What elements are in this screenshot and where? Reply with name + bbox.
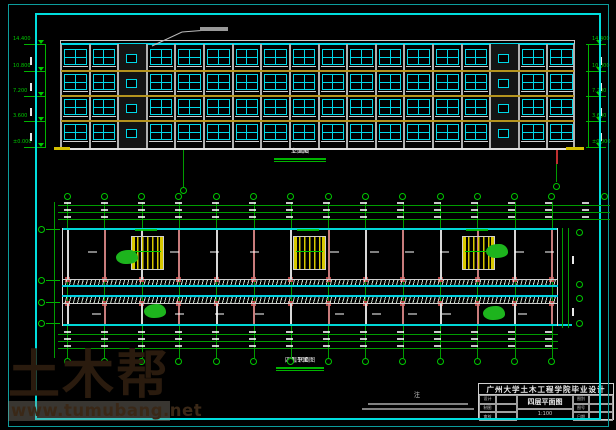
title-block-field-label: 审核 xyxy=(479,412,496,420)
plan-dim-line xyxy=(58,334,558,335)
title-block-field-label: 制图 xyxy=(479,404,496,413)
elevation-window-sill xyxy=(321,91,346,92)
elevation-window-sill xyxy=(521,141,546,142)
elevation-window xyxy=(293,74,316,90)
plan-partition-upper xyxy=(290,230,292,279)
elevation-window xyxy=(350,99,373,115)
elevation-window-sill xyxy=(263,66,288,67)
plan-room-label xyxy=(408,313,417,315)
plan-grid-bubble-bottom xyxy=(548,358,555,365)
plan-dim-numbers xyxy=(64,338,556,340)
plan-room-label xyxy=(210,251,219,253)
plan-partition-lower xyxy=(402,304,404,324)
elevation-window-sill xyxy=(435,116,460,117)
elevation-window-sill xyxy=(435,141,460,142)
elevation-window-sill xyxy=(177,116,202,117)
plan-partition-upper xyxy=(178,230,180,279)
elevation-dim-text-dash xyxy=(30,57,32,65)
plan-row-bubble-right xyxy=(576,281,583,288)
elevation-window-sill xyxy=(464,66,489,67)
plan-stair-rail xyxy=(463,237,466,269)
elevation-stair-window xyxy=(126,79,137,88)
elevation-window xyxy=(207,74,230,90)
plan-grid-bubble-top xyxy=(138,193,145,200)
plan-wall-left xyxy=(62,228,63,326)
elevation-level-mark xyxy=(596,143,602,147)
elevation-window xyxy=(350,74,373,90)
plan-dim-numbers xyxy=(64,202,609,204)
elevation-stair-window xyxy=(126,129,137,138)
elevation-window xyxy=(550,124,573,140)
elevation-window xyxy=(379,74,402,90)
elevation-window xyxy=(150,74,173,90)
elevation-window-sill xyxy=(321,66,346,67)
elevation-level-tick xyxy=(24,71,46,72)
plan-caption-underline-thin xyxy=(276,370,324,371)
elevation-window-sill xyxy=(378,116,403,117)
elevation-stair-window xyxy=(126,54,137,63)
notes-marker: 注 xyxy=(414,393,424,400)
elevation-window-sill xyxy=(349,91,374,92)
title-block-field-value xyxy=(496,395,517,404)
title-block-field-value xyxy=(589,395,613,404)
elevation-window xyxy=(93,49,116,65)
elevation-dim-text-dash xyxy=(600,57,602,65)
plan-grid-bubble-bottom xyxy=(362,358,369,365)
elevation-floor-band xyxy=(61,95,574,97)
elevation-window-sill xyxy=(435,91,460,92)
elevation-level-mark xyxy=(38,143,44,147)
plan-partition-lower xyxy=(514,304,516,324)
elevation-level-tick xyxy=(24,96,46,97)
plan-dim-line xyxy=(58,212,610,213)
elevation-window-sill xyxy=(149,91,174,92)
elevation-window xyxy=(150,99,173,115)
plan-partition-lower xyxy=(290,304,292,324)
plan-grid-bubble-top xyxy=(511,193,518,200)
elevation-grid-marker-red xyxy=(556,150,558,164)
plan-room-label xyxy=(215,313,224,315)
plan-row-bubble-right xyxy=(576,295,583,302)
plan-grid-bubble-bottom xyxy=(437,358,444,365)
plan-partition-upper xyxy=(104,230,106,279)
title-block-field-label: 日期 xyxy=(573,412,589,420)
notes-text-line xyxy=(368,403,468,405)
elevation-window xyxy=(407,49,430,65)
plan-partition-upper xyxy=(253,230,255,279)
plan-stair-label xyxy=(297,229,319,231)
plan-plant xyxy=(486,244,508,258)
plan-room-label xyxy=(442,313,451,315)
elevation-window xyxy=(465,99,488,115)
plan-dim-line-right xyxy=(562,228,563,328)
elevation-window-sill xyxy=(549,66,574,67)
plan-partition-lower xyxy=(104,304,106,324)
plan-dim-line xyxy=(58,219,610,220)
plan-grid-bubble-bottom xyxy=(325,358,332,365)
elevation-window-sill xyxy=(349,141,374,142)
elevation-window xyxy=(465,49,488,65)
plan-grid-bubble-top xyxy=(601,193,608,200)
elevation-window-sill xyxy=(177,66,202,67)
plan-partition-upper xyxy=(551,230,553,279)
title-block-field-label: 图号 xyxy=(573,404,589,413)
elevation-window-sill xyxy=(464,141,489,142)
plan-room-label xyxy=(372,313,381,315)
elevation-window-sill xyxy=(406,116,431,117)
elevation-grid-marker-line xyxy=(183,150,184,187)
elevation-window-sill xyxy=(92,91,117,92)
plan-caption-underline xyxy=(276,367,324,369)
elevation-window xyxy=(236,124,259,140)
elevation-grid-marker-line xyxy=(556,164,557,182)
elevation-window-sill xyxy=(349,66,374,67)
elevation-stair-window xyxy=(498,104,509,113)
elevation-window-sill xyxy=(92,116,117,117)
elevation-stair-window xyxy=(498,129,509,138)
plan-door-arcs xyxy=(62,280,558,285)
elevation-window xyxy=(207,99,230,115)
plan-wall-bottom xyxy=(62,324,572,326)
elevation-level-mark xyxy=(38,92,44,96)
plan-room-label xyxy=(330,251,339,253)
plan-grid-bubble-bottom xyxy=(399,358,406,365)
elevation-window-sill xyxy=(206,91,231,92)
elevation-level-mark xyxy=(596,67,602,71)
watermark-url: www.tumubang.net xyxy=(8,401,170,421)
plan-dim-numbers xyxy=(64,331,556,333)
title-block-scale: 1:100 xyxy=(517,409,573,419)
elevation-window xyxy=(236,74,259,90)
elevation-window xyxy=(522,124,545,140)
elevation-window xyxy=(64,99,87,115)
plan-grid-bubble-bottom xyxy=(474,358,481,365)
elevation-window-sill xyxy=(149,116,174,117)
plan-plant xyxy=(483,306,505,320)
elevation-window-sill xyxy=(263,116,288,117)
elevation-window-sill xyxy=(521,66,546,67)
elevation-stair-window xyxy=(126,104,137,113)
elevation-ground-yellow-left xyxy=(54,147,70,150)
elevation-window-sill xyxy=(378,66,403,67)
elevation-window-sill xyxy=(406,141,431,142)
plan-stair-rail xyxy=(160,237,163,269)
elevation-window-sill xyxy=(235,116,260,117)
elevation-level-mark xyxy=(38,117,44,121)
elevation-window-sill xyxy=(92,141,117,142)
plan-dim-numbers xyxy=(64,209,609,211)
plan-door-arcs xyxy=(62,297,558,303)
elevation-window xyxy=(350,49,373,65)
elevation-window xyxy=(93,74,116,90)
plan-room-label xyxy=(88,251,97,253)
elevation-window-sill xyxy=(464,91,489,92)
elevation-level-mark xyxy=(596,40,602,44)
elevation-window xyxy=(522,49,545,65)
plan-dim-text-dash xyxy=(572,308,574,316)
elevation-window-sill xyxy=(549,141,574,142)
elevation-caption-underline-thin xyxy=(274,161,326,162)
elevation-window-sill xyxy=(177,141,202,142)
elevation-window xyxy=(293,99,316,115)
elevation-floor-band xyxy=(61,70,574,72)
elevation-window xyxy=(465,124,488,140)
plan-partition-upper xyxy=(440,230,442,279)
plan-stair-rail xyxy=(294,237,297,269)
elevation-window-sill xyxy=(263,91,288,92)
elevation-level-mark xyxy=(596,117,602,121)
elevation-window-sill xyxy=(63,116,88,117)
elevation-window xyxy=(550,99,573,115)
elevation-window-sill xyxy=(435,66,460,67)
title-block-field-value xyxy=(496,404,517,413)
plan-plant xyxy=(144,304,166,318)
plan-partition-lower xyxy=(141,304,143,324)
elevation-window xyxy=(322,99,345,115)
plan-grid-bubble-top xyxy=(175,193,182,200)
plan-dim-numbers xyxy=(64,216,609,218)
elevation-window xyxy=(207,124,230,140)
plan-grid-bubble-bottom xyxy=(213,358,220,365)
elevation-window-sill xyxy=(521,91,546,92)
elevation-window-sill xyxy=(63,66,88,67)
elevation-window xyxy=(264,124,287,140)
elevation-dim-text-dash xyxy=(600,133,602,141)
elevation-window-sill xyxy=(321,141,346,142)
plan-grid-bubble-top xyxy=(437,193,444,200)
elevation-level-mark xyxy=(596,92,602,96)
title-block-field-value xyxy=(589,412,613,420)
elevation-window-sill xyxy=(235,141,260,142)
elevation-window xyxy=(93,124,116,140)
title-block: 广州大学土木工程学院毕业设计 设计 制图 审核 四层平面图 1:100 图别 图… xyxy=(478,383,614,420)
elevation-window xyxy=(178,74,201,90)
plan-room-label xyxy=(175,313,184,315)
elevation-window xyxy=(293,124,316,140)
elevation-level-mark xyxy=(38,40,44,44)
plan-partition-lower xyxy=(328,304,330,324)
elevation-window xyxy=(465,74,488,90)
plan-dim-line-left xyxy=(54,202,55,358)
elevation-window-sill xyxy=(521,116,546,117)
plan-partition-upper xyxy=(67,230,69,279)
elevation-window xyxy=(93,99,116,115)
elevation-window-sill xyxy=(349,116,374,117)
plan-grid-bubble-top xyxy=(325,193,332,200)
elevation-level-mark xyxy=(38,67,44,71)
elevation-window-sill xyxy=(292,91,317,92)
plan-room-label xyxy=(440,251,449,253)
plan-grid-bubble-top xyxy=(548,193,555,200)
elevation-window xyxy=(522,74,545,90)
plan-partition-upper xyxy=(216,230,218,279)
elevation-window-sill xyxy=(378,141,403,142)
plan-corridor-band xyxy=(62,285,558,287)
elevation-window-sill xyxy=(206,141,231,142)
plan-grid-bubble-top xyxy=(64,193,71,200)
elevation-dim-text-dash xyxy=(600,83,602,91)
plan-grid-bubble-top xyxy=(399,193,406,200)
plan-stair-label xyxy=(135,229,157,231)
plan-room-label xyxy=(545,251,554,253)
elevation-caption-underline xyxy=(274,158,326,160)
plan-row-bubble-right xyxy=(576,229,583,236)
elevation-window-sill xyxy=(263,141,288,142)
elevation-window-sill xyxy=(177,91,202,92)
elevation-ground-line xyxy=(54,148,584,150)
elevation-level-tick xyxy=(24,44,46,45)
plan-grid-bubble-top xyxy=(362,193,369,200)
plan-room-label xyxy=(335,313,344,315)
plan-grid-bubble-top xyxy=(287,193,294,200)
elevation-window xyxy=(379,124,402,140)
plan-plant xyxy=(116,250,138,264)
elevation-window-sill xyxy=(149,141,174,142)
plan-wall-right xyxy=(557,228,558,326)
notes-text-line xyxy=(362,408,474,410)
elevation-window xyxy=(550,49,573,65)
elevation-dim-text-dash xyxy=(30,83,32,91)
plan-row-tick-left xyxy=(46,280,60,281)
elevation-window xyxy=(322,74,345,90)
plan-row-tick-left xyxy=(46,229,60,230)
elevation-window xyxy=(64,74,87,90)
elevation-window-sill xyxy=(63,91,88,92)
plan-row-bubble-right xyxy=(576,320,583,327)
elevation-window-sill xyxy=(63,141,88,142)
elevation-window-sill xyxy=(406,91,431,92)
elevation-window xyxy=(264,74,287,90)
elevation-window-sill xyxy=(92,66,117,67)
plan-room-label xyxy=(405,251,414,253)
plan-partition-upper xyxy=(402,230,404,279)
elevation-window xyxy=(350,124,373,140)
plan-room-label xyxy=(518,313,527,315)
plan-row-tick-left xyxy=(46,302,60,303)
plan-row-bubble-left xyxy=(38,277,45,284)
elevation-window-sill xyxy=(235,91,260,92)
elevation-window-sill xyxy=(206,116,231,117)
title-block-school: 广州大学土木工程学院毕业设计 xyxy=(479,384,613,395)
elevation-window xyxy=(322,49,345,65)
plan-grid-bubble-top xyxy=(101,193,108,200)
plan-room-label xyxy=(92,313,101,315)
elevation-level-tick xyxy=(586,44,606,45)
plan-stair-arrow xyxy=(296,251,323,252)
elevation-grid-marker-bubble xyxy=(553,183,560,190)
plan-room-label xyxy=(255,313,264,315)
elevation-window-sill xyxy=(292,141,317,142)
elevation-window-sill xyxy=(378,91,403,92)
plan-grid-bubble-top xyxy=(474,193,481,200)
elevation-window xyxy=(436,99,459,115)
title-block-field-value xyxy=(496,412,517,420)
plan-row-tick-left xyxy=(46,323,60,324)
plan-caption: 四层平面图 1:100 xyxy=(240,357,360,366)
cad-drawing-sheet: 立面图 1:100 四层平面图 1:100 注 广州大学土木工程学院毕业设计 设… xyxy=(0,0,616,430)
plan-row-bubble-left xyxy=(38,299,45,306)
elevation-level-tick xyxy=(586,71,606,72)
elevation-window-sill xyxy=(549,91,574,92)
elevation-stair-window xyxy=(498,79,509,88)
elevation-window xyxy=(436,74,459,90)
plan-grid-bubble-bottom xyxy=(250,358,257,365)
plan-dim-line-right xyxy=(568,228,569,328)
plan-room-label xyxy=(370,251,379,253)
plan-partition-upper xyxy=(514,230,516,279)
plan-partition-upper xyxy=(328,230,330,279)
elevation-dim-text-dash xyxy=(600,108,602,116)
plan-grid-bubble-top xyxy=(213,193,220,200)
elevation-window-sill xyxy=(206,66,231,67)
elevation-window xyxy=(236,49,259,65)
elevation-window xyxy=(264,99,287,115)
elevation-window-sill xyxy=(235,66,260,67)
elevation-window xyxy=(178,99,201,115)
elevation-window xyxy=(522,99,545,115)
plan-room-label xyxy=(250,251,259,253)
elevation-level-tick xyxy=(586,96,606,97)
plan-room-label xyxy=(515,251,524,253)
elevation-level-tick xyxy=(586,121,606,122)
title-block-drawing-name: 四层平面图 xyxy=(517,395,573,409)
elevation-dim-text-dash xyxy=(30,133,32,141)
elevation-window xyxy=(236,99,259,115)
elevation-window xyxy=(264,49,287,65)
elevation-window-sill xyxy=(464,116,489,117)
elevation-window-sill xyxy=(292,116,317,117)
elevation-window xyxy=(178,124,201,140)
elevation-window xyxy=(436,49,459,65)
elevation-window-sill xyxy=(549,116,574,117)
elevation-window xyxy=(150,124,173,140)
plan-grid-bubble-top xyxy=(250,193,257,200)
roof-callout-leader xyxy=(150,24,240,48)
plan-dim-line xyxy=(58,205,610,206)
elevation-window-sill xyxy=(406,66,431,67)
plan-row-bubble-left xyxy=(38,320,45,327)
elevation-level-tick xyxy=(586,147,606,148)
watermark-brand: 土木帮 xyxy=(8,348,188,404)
elevation-dim-text-dash xyxy=(30,108,32,116)
plan-room-label xyxy=(170,251,179,253)
plan-stair-rail xyxy=(322,237,325,269)
elevation-window-sill xyxy=(321,116,346,117)
plan-partition-lower xyxy=(67,304,69,324)
plan-stair-label xyxy=(466,229,488,231)
elevation-window xyxy=(379,99,402,115)
plan-grid-bubble-bottom xyxy=(511,358,518,365)
elevation-window xyxy=(64,124,87,140)
elevation-window-sill xyxy=(149,66,174,67)
title-block-field-label: 图别 xyxy=(573,395,589,404)
elevation-window xyxy=(207,49,230,65)
elevation-window xyxy=(293,49,316,65)
elevation-window xyxy=(322,124,345,140)
plan-stair-arrow xyxy=(134,251,161,252)
elevation-floor-band xyxy=(61,120,574,122)
plan-dim-text-dash xyxy=(572,256,574,264)
elevation-window xyxy=(150,49,173,65)
plan-partition-lower xyxy=(477,304,479,324)
plan-partition-lower xyxy=(365,304,367,324)
title-block-field-value xyxy=(589,404,613,413)
elevation-window xyxy=(407,99,430,115)
plan-row-bubble-left xyxy=(38,226,45,233)
plan-corridor-wall xyxy=(62,303,558,304)
title-block-field-label: 设计 xyxy=(479,395,496,404)
elevation-level-tick xyxy=(24,121,46,122)
